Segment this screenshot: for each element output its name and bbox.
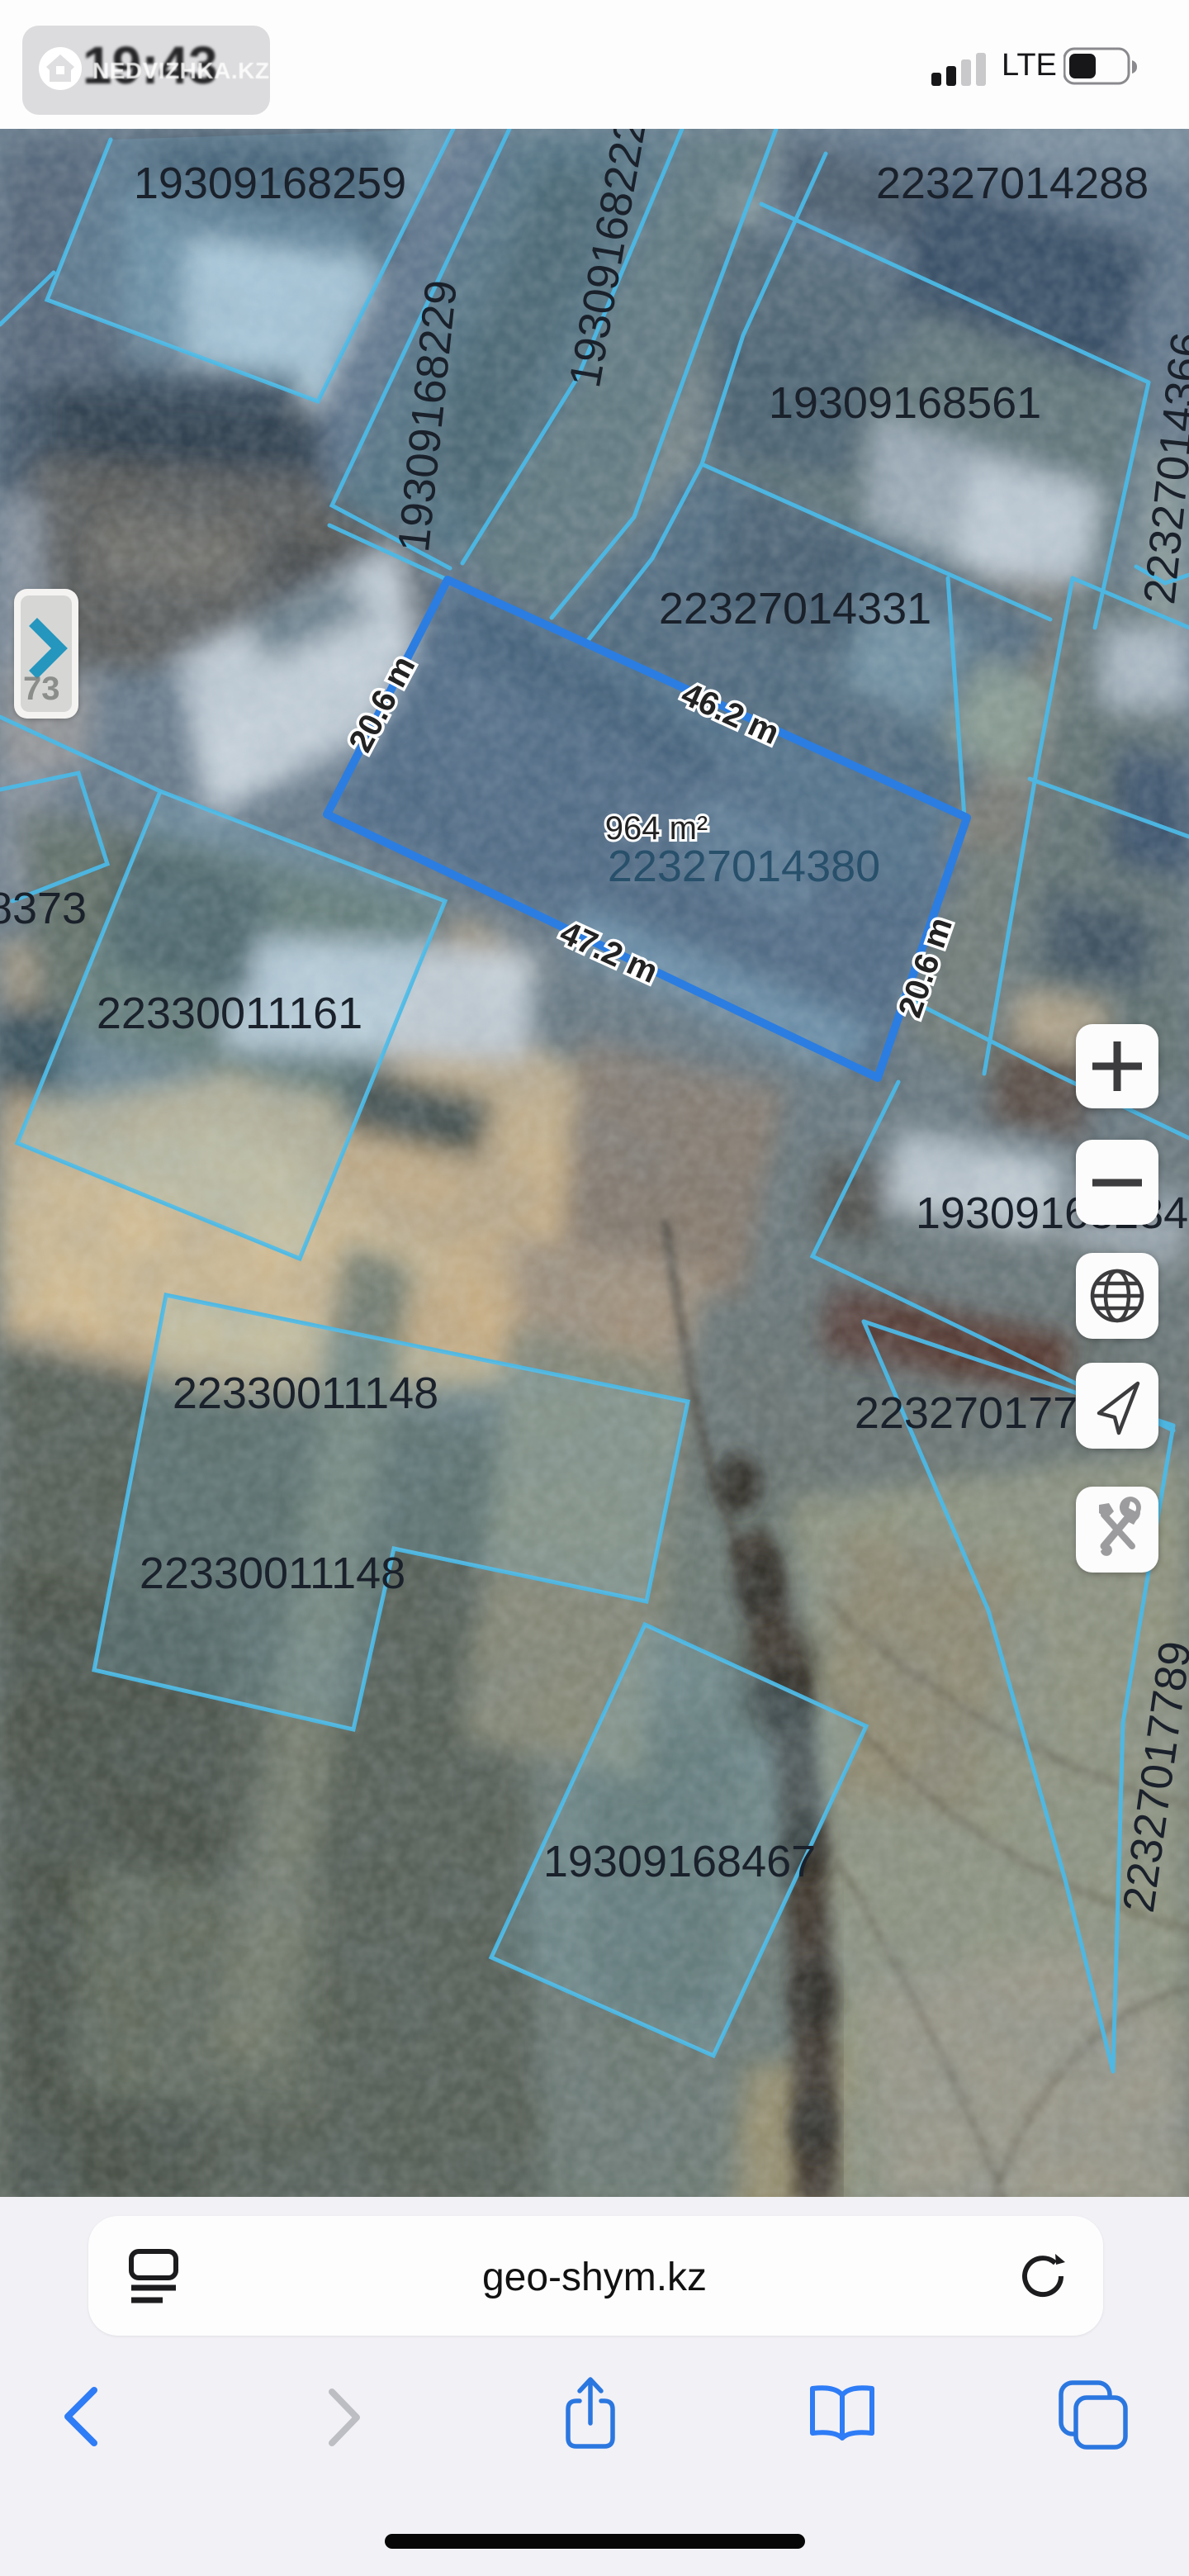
- svg-text:19309168561: 19309168561: [769, 378, 1041, 428]
- svg-text:22330011161: 22330011161: [97, 989, 362, 1038]
- svg-text:22330011148: 22330011148: [140, 1549, 405, 1598]
- svg-text:223270177: 223270177: [855, 1388, 1078, 1438]
- svg-text:22327014331: 22327014331: [659, 584, 931, 633]
- svg-text:19309168467: 19309168467: [543, 1837, 816, 1886]
- svg-text:22327014380: 22327014380: [608, 842, 880, 891]
- svg-text:19309168259: 19309168259: [134, 159, 406, 208]
- svg-text:964 m²: 964 m²: [605, 810, 708, 847]
- svg-text:22327014288: 22327014288: [876, 159, 1149, 208]
- svg-text:22330011148: 22330011148: [173, 1369, 438, 1418]
- svg-text:8373: 8373: [0, 884, 87, 933]
